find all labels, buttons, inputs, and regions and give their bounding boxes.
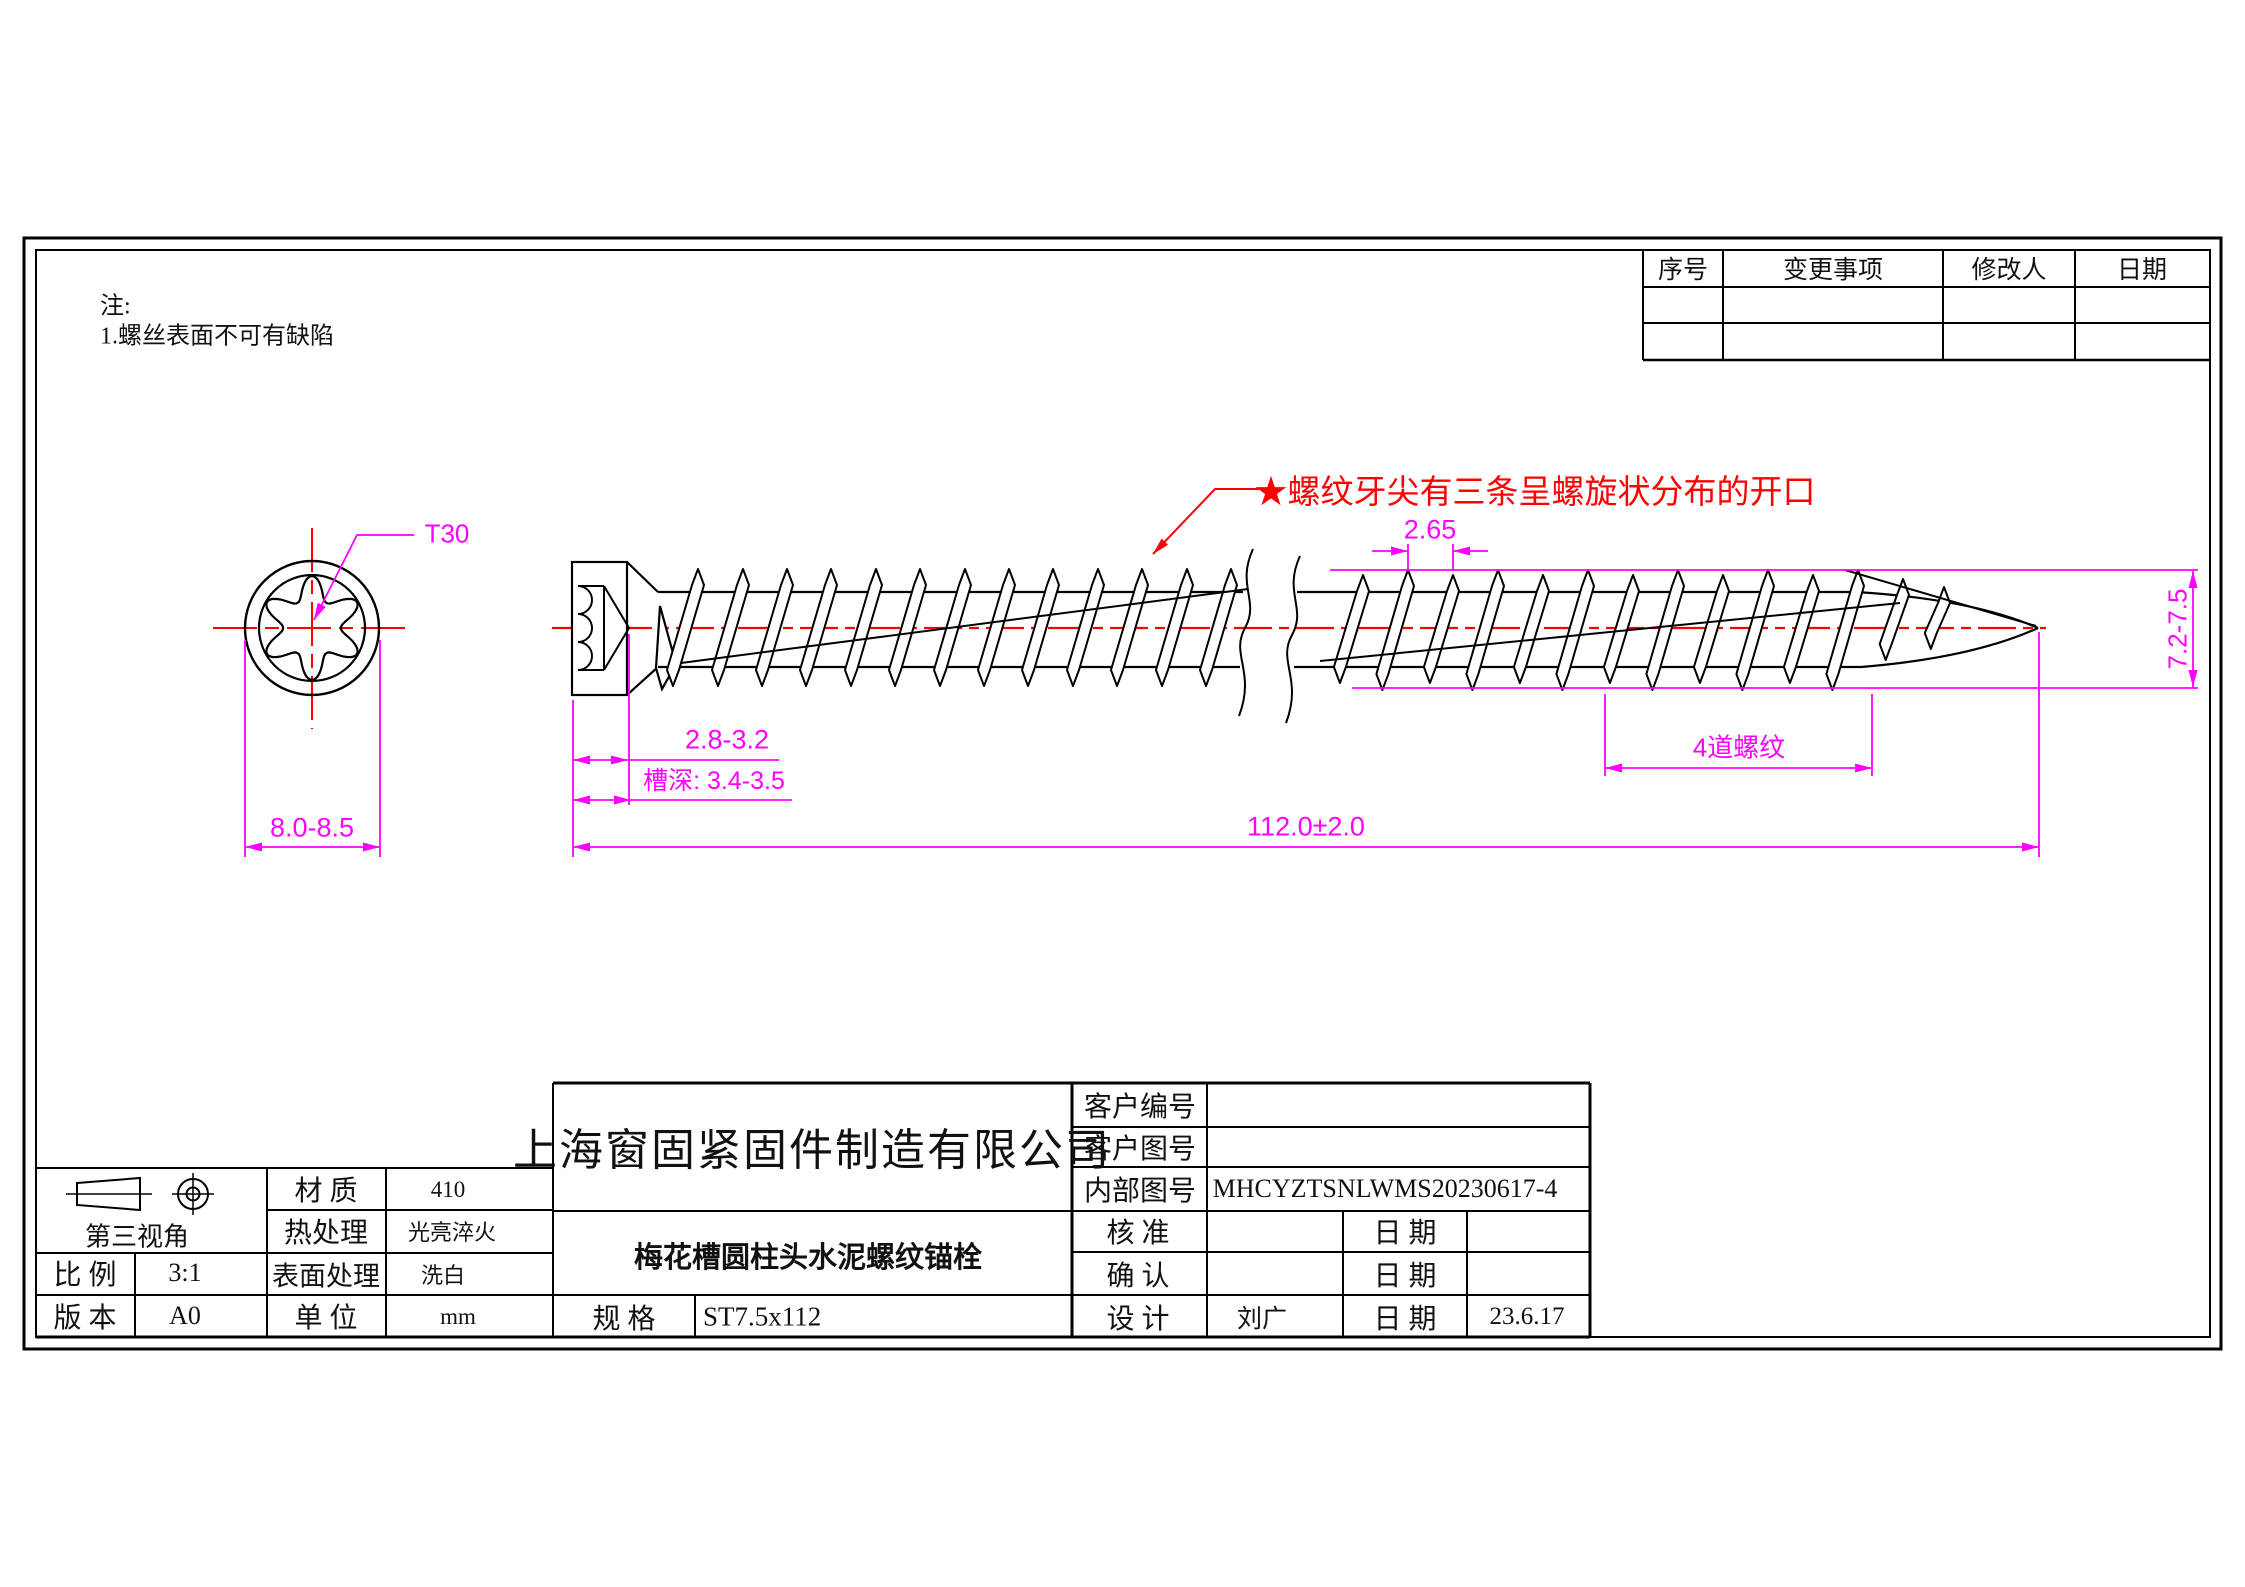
version-value: A0: [169, 1301, 201, 1331]
revision-col-seq: 序号: [1658, 250, 1708, 286]
internal-dwg-label: 内部图号: [1084, 1169, 1196, 1209]
heat-treatment-value: 光亮淬火: [408, 1215, 496, 1247]
designer-name: 刘广: [1237, 1299, 1287, 1335]
revision-col-change: 变更事项: [1783, 250, 1883, 286]
projection-label: 第三视角: [85, 1217, 189, 1254]
break-lines: [1239, 549, 1300, 723]
design-date-label: 日 期: [1373, 1297, 1436, 1337]
unit-value: mm: [440, 1304, 476, 1330]
approve-label: 核 准: [1106, 1211, 1169, 1251]
design-label: 设 计: [1106, 1297, 1169, 1337]
scale-value: 3:1: [168, 1258, 201, 1288]
surface-value: 洗白: [421, 1258, 465, 1290]
screw-end-view: [213, 528, 411, 729]
revision-col-modifier: 修改人: [1971, 250, 2046, 286]
thread-tip-annotation: ★螺纹牙尖有三条呈螺旋状分布的开口: [1255, 465, 1816, 513]
version-label: 版 本: [53, 1296, 116, 1336]
heat-treatment-label: 热处理: [284, 1211, 368, 1251]
confirm-date-label: 日 期: [1373, 1254, 1436, 1294]
thread-crests: [667, 569, 1950, 690]
dim-torx-size: T30: [425, 519, 470, 550]
dim-recess-depth: 槽深: 3.4-3.5: [643, 761, 785, 797]
unit-label: 单 位: [294, 1296, 357, 1336]
screw-side-view: [552, 549, 2046, 723]
spec-value: ST7.5x112: [703, 1302, 821, 1333]
product-name: 梅花槽圆柱头水泥螺纹锚栓: [634, 1234, 982, 1276]
surface-label: 表面处理: [272, 1255, 380, 1294]
customer-dwg-label: 客户图号: [1084, 1127, 1196, 1167]
note-line-1: 1.螺丝表面不可有缺陷: [100, 316, 334, 351]
third-angle-projection-icon: [66, 1173, 214, 1215]
design-date-value: 23.6.17: [1490, 1303, 1565, 1331]
dim-total-length: 112.0±2.0: [1247, 812, 1365, 843]
dim-thread-zone: 4道螺纹: [1693, 728, 1785, 765]
dim-thread-pitch: 2.65: [1404, 515, 1457, 546]
customer-no-label: 客户编号: [1084, 1085, 1196, 1125]
engineering-drawing-sheet: 注: 1.螺丝表面不可有缺陷 ★螺纹牙尖有三条呈螺旋状分布的开口 T30 8.0…: [0, 0, 2245, 1587]
company-name: 上海窗固紧固件制造有限公司: [513, 1114, 1111, 1178]
revision-col-date: 日期: [2117, 250, 2167, 286]
scale-label: 比 例: [53, 1253, 116, 1293]
drawing-canvas: [0, 0, 2245, 1587]
material-label: 材 质: [294, 1169, 357, 1209]
confirm-label: 确 认: [1106, 1254, 1169, 1294]
annotation-leader: [1153, 489, 1263, 554]
approve-date-label: 日 期: [1373, 1211, 1436, 1251]
internal-dwg-value: MHCYZTSNLWMS20230617-4: [1213, 1174, 1558, 1204]
dim-head-height: 2.8-3.2: [685, 725, 769, 756]
material-value: 410: [431, 1177, 466, 1203]
dim-head-diameter: 8.0-8.5: [270, 813, 354, 844]
spec-label: 规 格: [592, 1297, 655, 1337]
dim-thread-od: 7.2-7.5: [2163, 589, 2194, 670]
